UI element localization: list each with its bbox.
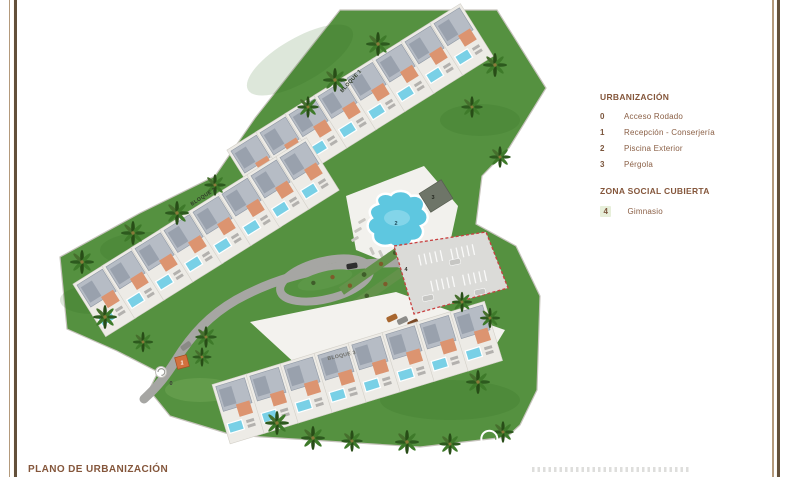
palm-tree	[489, 146, 511, 168]
palm-tree	[466, 370, 490, 394]
legend-item-label: Recepción - Conserjería	[624, 128, 715, 137]
palm-tree	[70, 250, 94, 274]
legend-item-label: Acceso Rodado	[624, 112, 683, 121]
legend-item: 1 Recepción - Conserjería	[600, 125, 775, 141]
legend-item-num-highlighted: 4	[600, 206, 611, 217]
palm-tree	[121, 221, 145, 245]
palm-tree	[483, 53, 507, 77]
legend-title-zona-social: ZONA SOCIAL CUBIERTA	[600, 186, 775, 196]
palm-tree	[133, 332, 153, 352]
legend-item-label: Piscina Exterior	[624, 144, 683, 153]
palm-tree	[480, 308, 500, 328]
legend-item-label: Pérgola	[624, 160, 653, 169]
legend-title-urbanizacion: URBANIZACIÓN	[600, 92, 775, 102]
marker-0: 0	[169, 381, 172, 387]
palm-tree	[492, 421, 514, 443]
legend-item-num: 0	[600, 112, 624, 121]
palm-tree	[366, 32, 390, 56]
legend-item: 3 Pérgola	[600, 156, 775, 172]
legend-item-num: 2	[600, 144, 624, 153]
palm-tree	[439, 433, 461, 455]
entrance-roundabout	[156, 367, 167, 378]
palm-tree	[297, 96, 319, 118]
palm-tree	[395, 430, 419, 454]
illegible-fine-print	[532, 467, 690, 472]
plan-title: PLANO DE URBANIZACIÓN	[28, 464, 168, 475]
legend-panel: URBANIZACIÓN 0 Acceso Rodado 1 Recepción…	[600, 92, 775, 219]
legend-item: 0 Acceso Rodado	[600, 109, 775, 125]
palm-tree	[341, 430, 363, 452]
marker-2: 2	[394, 221, 397, 227]
marker-3: 3	[431, 195, 434, 201]
legend-spacer	[600, 172, 775, 186]
site-plan-map: BLOQUE 1 BLOQUE 2 BLOQUE 3 0 1 2 3 4	[0, 0, 788, 477]
palm-tree	[165, 201, 189, 225]
legend-item: 4 Gimnasio	[600, 203, 775, 219]
palm-tree	[301, 426, 325, 450]
palm-tree	[93, 305, 117, 329]
legend-item: 2 Piscina Exterior	[600, 141, 775, 157]
legend-item-num: 1	[600, 128, 624, 137]
palm-tree	[265, 411, 289, 435]
palm-tree	[195, 326, 217, 348]
palm-tree	[452, 292, 472, 312]
marker-1: 1	[180, 361, 183, 367]
palm-tree	[461, 96, 483, 118]
legend-item-num: 3	[600, 160, 624, 169]
palm-tree	[192, 347, 211, 366]
legend-item-label: Gimnasio	[627, 207, 662, 216]
